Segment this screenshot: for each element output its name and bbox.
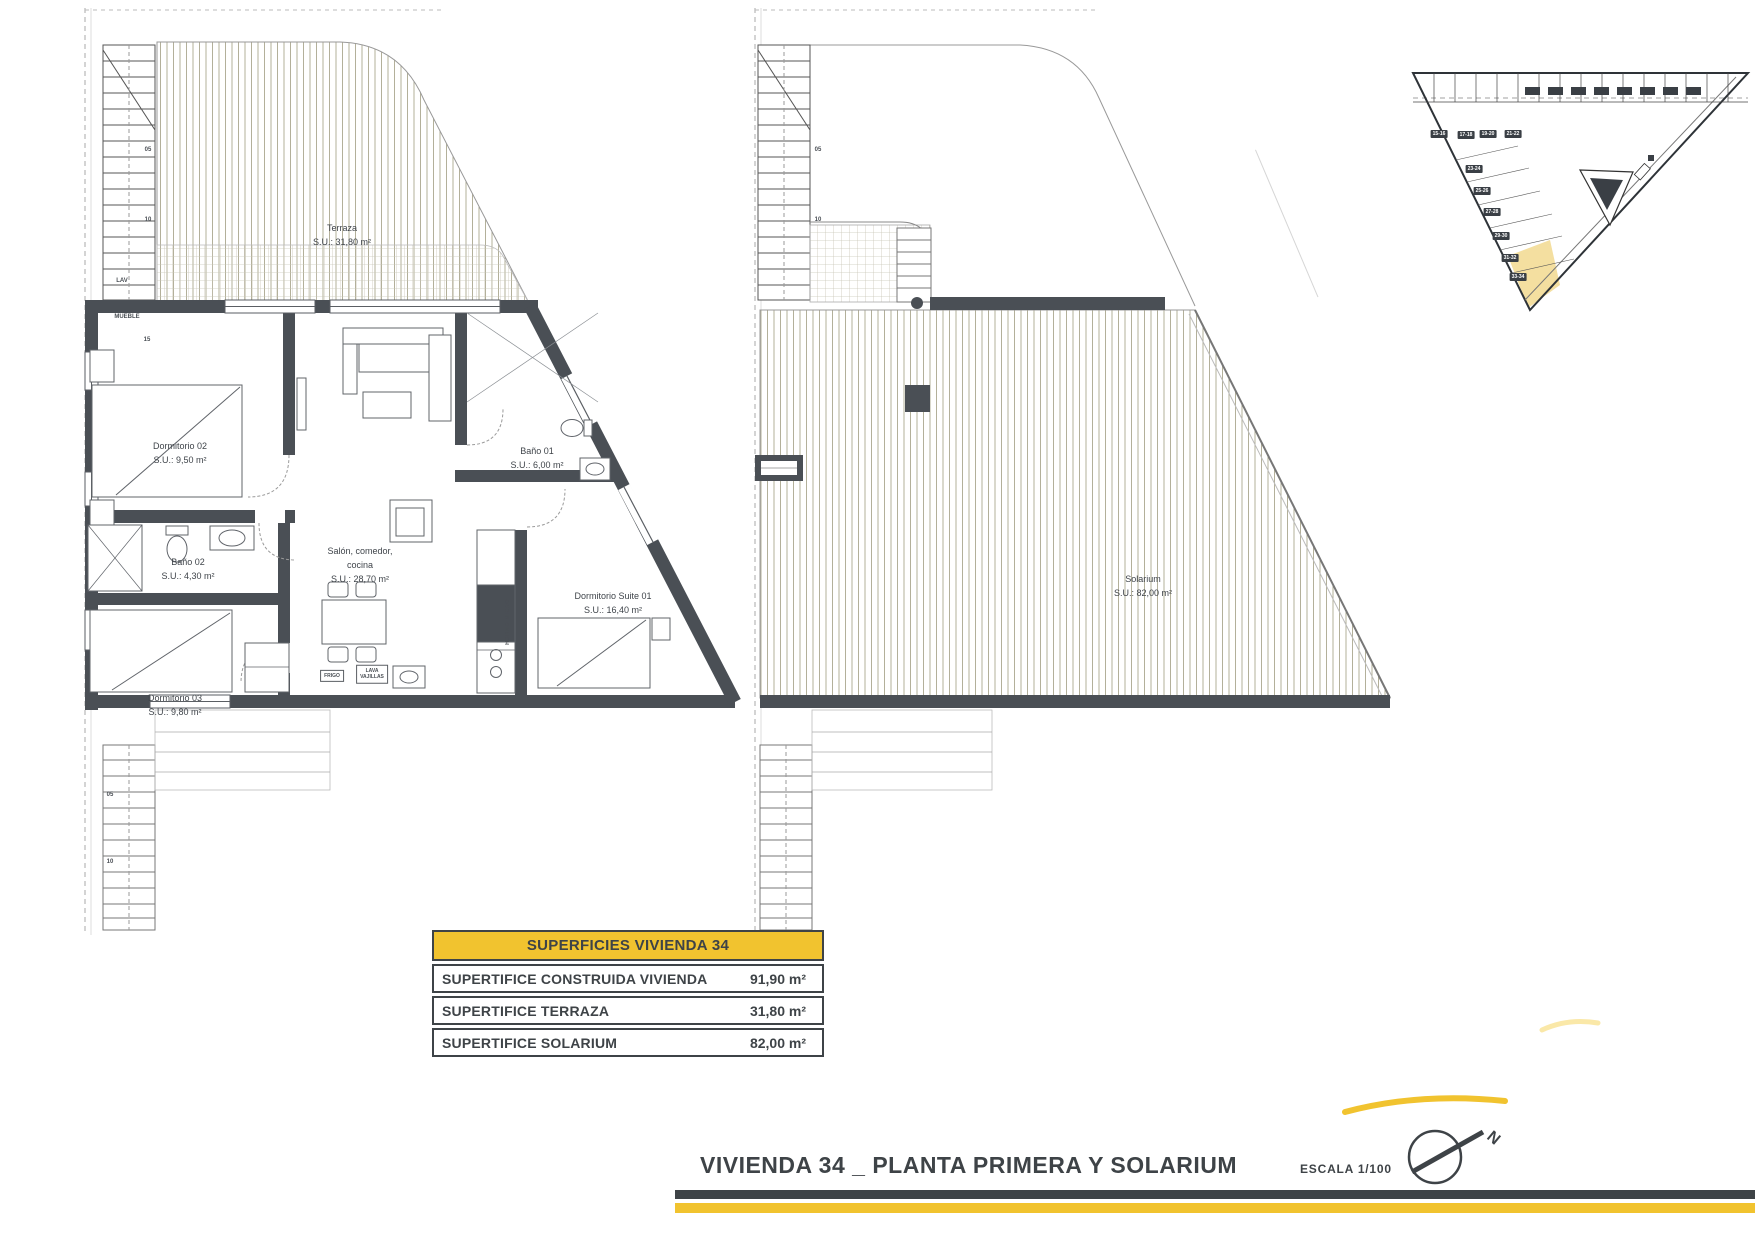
- stairs-up: [103, 45, 155, 300]
- unit-badge: 29-30: [1493, 232, 1510, 240]
- stairs-down: [103, 745, 155, 930]
- room-name: cocina: [327, 559, 392, 573]
- room-name: Solarium: [1114, 573, 1172, 587]
- room-label-dormitorio03: Dormitorio 03 S.U.: 9,80 m²: [148, 692, 202, 720]
- unit-badge: 31-32: [1502, 254, 1519, 262]
- room-name: Dormitorio 03: [148, 692, 202, 706]
- room-label-dormitorio02: Dormitorio 02 S.U.: 9,50 m²: [153, 440, 207, 468]
- table-row: SUPERTIFICE SOLARIUM 82,00 m²: [432, 1028, 824, 1057]
- closet-label-lav: LAV: [116, 278, 128, 284]
- room-area: S.U.: 82,00 m²: [1114, 587, 1172, 601]
- closet-label-mueble: MUEBLE: [114, 314, 139, 320]
- plan-sheet: 15-16 17-18 19-20 21-22 23-24 25-26 27-2…: [0, 0, 1755, 1249]
- room-name: Baño 01: [510, 445, 563, 459]
- stair-step-number: 05: [145, 147, 152, 153]
- room-name: Dormitorio 02: [153, 440, 207, 454]
- surface-summary-table: SUPERFICIES VIVIENDA 34 SUPERTIFICE CONS…: [432, 930, 824, 1057]
- pillar: [911, 297, 923, 309]
- unit-badge: 23-24: [1466, 165, 1483, 173]
- room-area: S.U.: 6,00 m²: [510, 459, 563, 473]
- footer-bar-dark: [675, 1190, 1755, 1199]
- row-label: SUPERTIFICE TERRAZA: [434, 1003, 609, 1019]
- bottom-wall: [760, 695, 1390, 708]
- room-area: S.U.: 31,80 m²: [313, 236, 371, 250]
- room-label-salon: Salón, comedor, cocina S.U.: 28,70 m²: [327, 545, 392, 587]
- unit-badge: 19-20: [1480, 130, 1497, 138]
- table-header: SUPERFICIES VIVIENDA 34: [432, 930, 824, 961]
- appliance-label-lavavajillas: LAVA VAJILLAS: [356, 665, 388, 684]
- room-area: S.U.: 28,70 m²: [327, 573, 392, 587]
- room-area: S.U.: 9,80 m²: [148, 706, 202, 720]
- pergola-grid: [157, 245, 530, 305]
- north-letter: N: [1483, 1128, 1503, 1148]
- stair-step-number: 05: [815, 147, 822, 153]
- room-label-suite: Dormitorio Suite 01 S.U.: 16,40 m²: [574, 590, 651, 618]
- appliance-label-line: VAJILLAS: [360, 674, 384, 680]
- unit-badge: 21-22: [1505, 130, 1522, 138]
- unit-badge-highlighted: 33-34: [1510, 273, 1527, 281]
- row-value: 82,00 m²: [750, 1035, 822, 1051]
- room-label-solarium: Solarium S.U.: 82,00 m²: [1114, 573, 1172, 601]
- north-compass-icon: N: [1398, 1122, 1518, 1200]
- stair-step-number: 10: [815, 217, 822, 223]
- room-name: Baño 02: [161, 556, 214, 570]
- room-name: Terraza: [313, 222, 371, 236]
- room-label-bano01: Baño 01 S.U.: 6,00 m²: [510, 445, 563, 473]
- lower-terrace-lines: [155, 710, 330, 790]
- stair-step-number: 05: [107, 792, 114, 798]
- footer-bar-yellow: [675, 1203, 1755, 1213]
- appliance-label-frigo: FRIGO: [320, 670, 344, 682]
- row-label: SUPERTIFICE SOLARIUM: [434, 1035, 617, 1051]
- chimney-block: [905, 385, 930, 412]
- brand-swoosh: [1340, 1088, 1510, 1122]
- row-value: 31,80 m²: [750, 1003, 822, 1019]
- sheet-title: VIVIENDA 34 _ PLANTA PRIMERA Y SOLARIUM: [700, 1152, 1237, 1179]
- stairs-up: [758, 45, 810, 300]
- stair-step-number: 10: [107, 859, 114, 865]
- solarium-area: [760, 310, 1390, 698]
- unit-badge: 25-26: [1474, 187, 1491, 195]
- unit-badge: 27-28: [1484, 208, 1501, 216]
- solarium-plan-drawing: [745, 0, 1405, 940]
- table-row: SUPERTIFICE TERRAZA 31,80 m²: [432, 996, 824, 1025]
- appliance-label-horno: HORNO MICRO: [505, 599, 511, 645]
- stair-step-number: 10: [145, 217, 152, 223]
- first-floor-plan-drawing: [60, 0, 760, 940]
- room-label-terraza: Terraza S.U.: 31,80 m²: [313, 222, 371, 250]
- row-label: SUPERTIFICE CONSTRUIDA VIVIENDA: [434, 971, 707, 987]
- room-area: S.U.: 9,50 m²: [153, 454, 207, 468]
- room-area: S.U.: 4,30 m²: [161, 570, 214, 584]
- brand-swoosh-small: [1538, 1012, 1602, 1040]
- key-map: [1390, 60, 1755, 320]
- lower-terrace-lines: [812, 710, 992, 790]
- mini-stair: [897, 228, 931, 302]
- parapet-wall: [930, 297, 1165, 310]
- row-value: 91,90 m²: [750, 971, 822, 987]
- unit-badge: 15-16: [1431, 130, 1448, 138]
- unit-badge: 17-18: [1458, 131, 1475, 139]
- room-area: S.U.: 16,40 m²: [574, 604, 651, 618]
- scale-label: ESCALA 1/100: [1300, 1162, 1392, 1176]
- stairs-down: [760, 745, 812, 930]
- stair-step-number: 15: [144, 337, 151, 343]
- room-name: Salón, comedor,: [327, 545, 392, 559]
- table-row: SUPERTIFICE CONSTRUIDA VIVIENDA 91,90 m²: [432, 964, 824, 993]
- furniture: [88, 313, 670, 693]
- room-label-bano02: Baño 02 S.U.: 4,30 m²: [161, 556, 214, 584]
- room-name: Dormitorio Suite 01: [574, 590, 651, 604]
